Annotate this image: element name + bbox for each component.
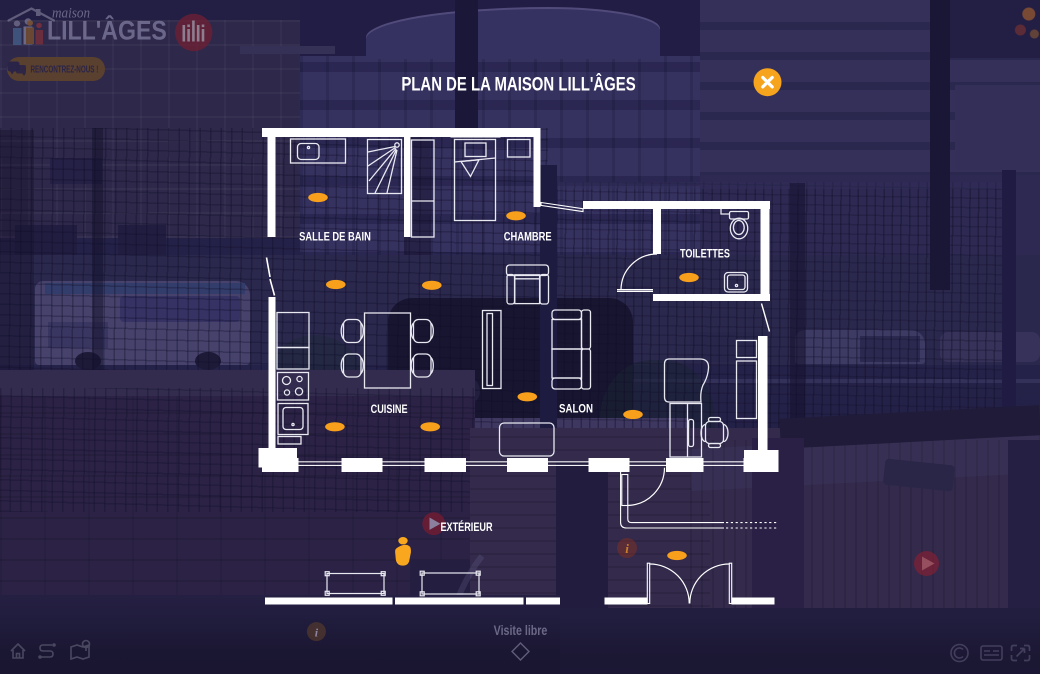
- svg-text:CHAMBRE: CHAMBRE: [504, 230, 552, 243]
- svg-text:TOILETTES: TOILETTES: [680, 247, 730, 261]
- svg-text:Visite libre: Visite libre: [494, 623, 548, 639]
- svg-text:i: i: [625, 541, 629, 556]
- svg-text:SALON: SALON: [559, 403, 593, 416]
- svg-text:SALLE DE BAIN: SALLE DE BAIN: [299, 230, 371, 243]
- svg-text:PLAN DE LA MAISON LILL'ÂGES: PLAN DE LA MAISON LILL'ÂGES: [401, 74, 635, 95]
- svg-text:RENCONTREZ-NOUS !: RENCONTREZ-NOUS !: [31, 63, 99, 75]
- svg-text:CUISINE: CUISINE: [371, 403, 408, 417]
- svg-text:LILL'ÂGES: LILL'ÂGES: [47, 14, 167, 46]
- svg-text:EXTÉRIEUR: EXTÉRIEUR: [440, 520, 492, 535]
